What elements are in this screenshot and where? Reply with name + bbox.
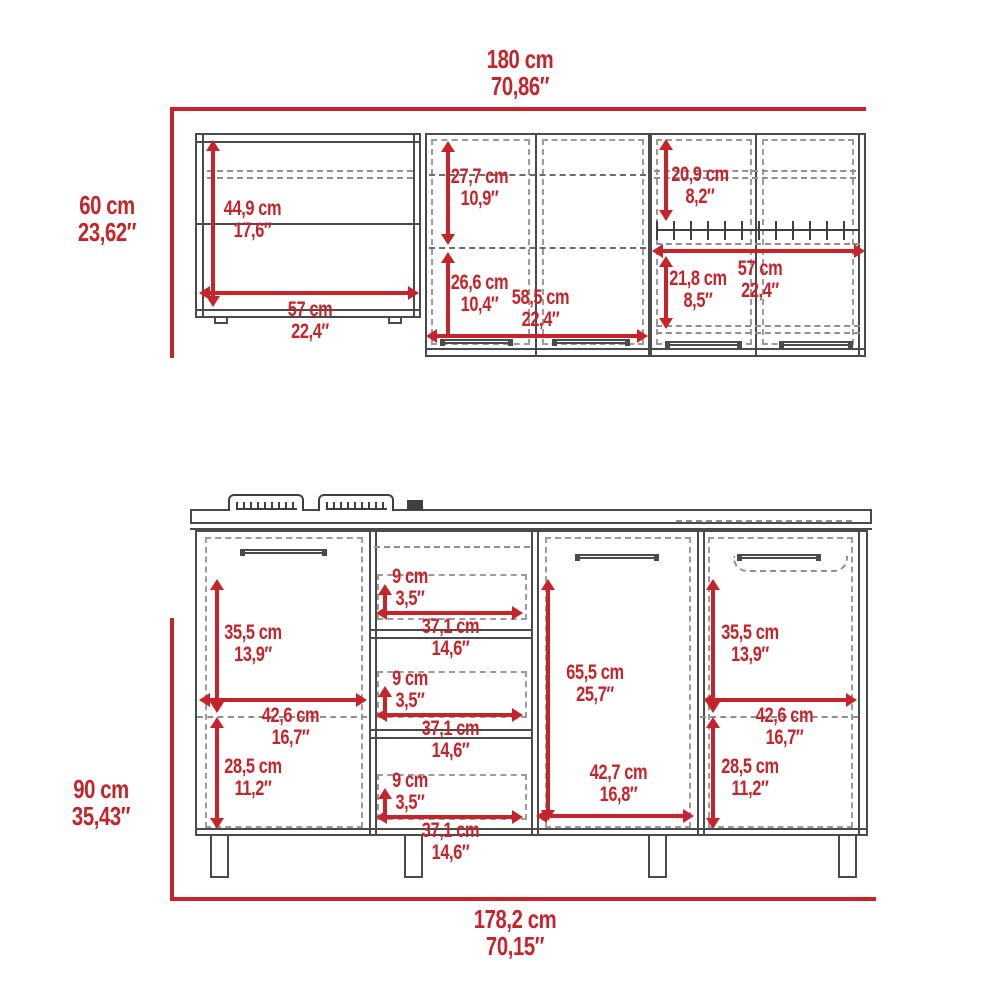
upper-open-shelf-foot-tab-right	[388, 316, 402, 324]
upper-middle-bottom-inner-line	[427, 348, 648, 350]
upper-right-door-divider-line	[755, 133, 757, 357]
dim-value-cm: 21,8 cm	[659, 268, 737, 290]
dim-value-inches: 16,7″	[736, 727, 834, 749]
dim-open-shelf-width-arrow	[209, 291, 409, 295]
upper-overall-width-label: 180 cm 70,86″	[442, 46, 598, 100]
dim-value-inches: 22,4″	[492, 309, 590, 331]
dim-right-door-width-arrow	[713, 698, 847, 702]
drawer-stack-top-dashed-line	[374, 546, 530, 548]
dim-drawer-2-width-label: 37,1 cm 14,6″	[402, 718, 500, 762]
dim-value-inches: 3,5″	[387, 588, 434, 610]
dim-value-cm: 28,5 cm	[711, 756, 789, 778]
dim-value-cm: 42,6 cm	[736, 705, 834, 727]
dim-value-cm: 42,7 cm	[570, 762, 668, 784]
dim-value-inches: 8,2″	[661, 186, 739, 208]
glass-rack-dashed-line-1	[656, 325, 860, 327]
upper-open-shelf-foot-tab-left	[214, 316, 228, 324]
cabinet-leg-3	[648, 836, 667, 878]
dim-right-upper-height-label: 20,9 cm 8,2″	[661, 164, 739, 208]
dim-value-cm: 58,5 cm	[492, 287, 590, 309]
dim-value-cm: 42,6 cm	[242, 705, 340, 727]
dim-value-cm: 44,9 cm	[215, 198, 289, 220]
dim-value-cm: 35,5 cm	[711, 622, 789, 644]
upper-overall-width-guide-line	[170, 107, 866, 111]
dim-open-shelf-height-arrow	[211, 150, 215, 297]
dim-value-cm: 9 cm	[387, 566, 434, 588]
dim-value-inches: 70,15″	[437, 933, 593, 960]
dim-value-cm: 180 cm	[442, 46, 598, 73]
dim-value-inches: 70,86″	[442, 73, 598, 100]
glass-rack-dashed-line-2	[656, 332, 860, 334]
dim-open-shelf-height-label: 44,9 cm 17,6″	[215, 198, 289, 242]
upper-right-left-door-handle	[665, 341, 742, 346]
dim-middle-door-width-label: 42,7 cm 16,8″	[570, 762, 668, 806]
lower-overall-height-guide-line	[170, 618, 174, 901]
dim-left-door-lower-height-label: 28,5 cm 11,2″	[214, 756, 292, 800]
dim-value-cm: 37,1 cm	[402, 616, 500, 638]
dim-value-inches: 17,6″	[215, 220, 289, 242]
dim-middle-width-label: 58,5 cm 22,4″	[492, 287, 590, 331]
dim-value-inches: 35,43″	[58, 803, 144, 830]
upper-middle-right-door-handle	[552, 339, 630, 344]
dim-left-door-width-arrow	[209, 698, 357, 702]
dim-drawer-1-height-label: 9 cm 3,5″	[387, 566, 434, 610]
cooktop-knob	[407, 500, 423, 510]
dim-value-inches: 11,2″	[214, 778, 292, 800]
dim-value-cm: 20,9 cm	[661, 164, 739, 186]
dim-drawer-3-height-label: 9 cm 3,5″	[387, 770, 434, 814]
dim-value-inches: 10,9″	[442, 188, 516, 210]
lower-overall-height-label: 90 cm 35,43″	[58, 776, 144, 830]
upper-right-bottom-inner-line	[652, 348, 864, 350]
dim-drawer-1-width-label: 37,1 cm 14,6″	[402, 616, 500, 660]
dim-value-inches: 23,62″	[64, 219, 150, 246]
upper-right-right-door-handle	[779, 341, 853, 346]
upper-right-dashed-line-3	[656, 243, 860, 245]
upper-overall-height-label: 60 cm 23,62″	[64, 192, 150, 246]
dim-value-cm: 37,1 cm	[402, 820, 500, 842]
dim-middle-door-height-arrow	[546, 589, 550, 811]
dim-value-inches: 16,7″	[242, 727, 340, 749]
dim-right-lower-height-label: 21,8 cm 8,5″	[659, 268, 737, 312]
dim-value-cm: 35,5 cm	[214, 622, 292, 644]
dim-drawer-3-width-label: 37,1 cm 14,6″	[402, 820, 500, 864]
lower-overall-width-label: 178,2 cm 70,15″	[437, 906, 593, 960]
upper-middle-left-door-handle	[440, 339, 513, 344]
dim-value-inches: 14,6″	[402, 740, 500, 762]
cabinet-leg-1	[210, 836, 229, 878]
dim-value-inches: 11,2″	[711, 778, 789, 800]
dim-value-inches: 13,9″	[711, 644, 789, 666]
upper-open-shelf-dashed-line-1	[207, 170, 413, 172]
dim-value-inches: 16,8″	[570, 784, 668, 806]
dim-open-shelf-width-label: 57 cm 22,4″	[263, 299, 357, 343]
dim-value-inches: 14,6″	[402, 842, 500, 864]
dim-value-cm: 37,1 cm	[402, 718, 500, 740]
upper-overall-height-guide-line	[170, 107, 174, 358]
dim-right-door-width-label: 42,6 cm 16,7″	[736, 705, 834, 749]
dim-value-inches: 3,5″	[387, 690, 434, 712]
dim-value-cm: 27,7 cm	[442, 166, 516, 188]
upper-open-shelf-top-inner-line	[197, 141, 419, 143]
dim-middle-door-width-arrow	[546, 814, 684, 818]
base-divider-right-a	[697, 530, 699, 836]
dim-value-cm: 9 cm	[387, 770, 434, 792]
gas-burner-right-grate	[326, 502, 387, 510]
base-divider-mid-b	[537, 530, 539, 836]
dim-value-inches: 22,4″	[263, 321, 357, 343]
sink-hidden-dashed-line	[676, 520, 852, 522]
dim-value-inches: 8,5″	[659, 290, 737, 312]
dim-left-door-width-label: 42,6 cm 16,7″	[242, 705, 340, 749]
upper-open-shelf-dashed-line-2	[207, 177, 413, 179]
dim-value-inches: 3,5″	[387, 792, 434, 814]
spec-sheet-canvas: 180 cm 70,86″ 60 cm 23,62″ 44,9 cm 17,6″…	[0, 0, 1000, 1001]
dim-value-cm: 57 cm	[263, 299, 357, 321]
base-divider-right-b	[703, 530, 705, 836]
dim-value-cm: 65,5 cm	[556, 662, 634, 684]
dim-left-door-upper-height-label: 35,5 cm 13,9″	[214, 622, 292, 666]
dim-middle-door-height-label: 65,5 cm 25,7″	[556, 662, 634, 706]
dim-middle-width-arrow	[436, 334, 638, 338]
dim-drawer-2-height-label: 9 cm 3,5″	[387, 668, 434, 712]
cabinet-leg-4	[838, 836, 857, 878]
dim-value-cm: 28,5 cm	[214, 756, 292, 778]
dim-value-inches: 14,6″	[402, 638, 500, 660]
dim-value-cm: 90 cm	[58, 776, 144, 803]
base-divider-left-a	[369, 530, 371, 836]
dim-value-cm: 178,2 cm	[437, 906, 593, 933]
upper-middle-mid-dashed-line	[429, 247, 646, 249]
plate-rack	[656, 221, 860, 240]
dim-value-inches: 25,7″	[556, 684, 634, 706]
dim-right-width-arrow	[662, 249, 855, 253]
base-right-inner-line	[858, 532, 860, 834]
lower-overall-width-guide-line	[170, 897, 876, 901]
dim-middle-upper-height-label: 27,7 cm 10,9″	[442, 166, 516, 210]
dim-right-door-upper-height-label: 35,5 cm 13,9″	[711, 622, 789, 666]
dim-value-cm: 9 cm	[387, 668, 434, 690]
dim-right-door-lower-height-label: 28,5 cm 11,2″	[711, 756, 789, 800]
gas-burner-left-grate	[236, 502, 297, 510]
dim-value-cm: 60 cm	[64, 192, 150, 219]
base-divider-mid-a	[531, 530, 533, 836]
plate-rack-rail	[656, 229, 860, 231]
dim-value-inches: 13,9″	[214, 644, 292, 666]
